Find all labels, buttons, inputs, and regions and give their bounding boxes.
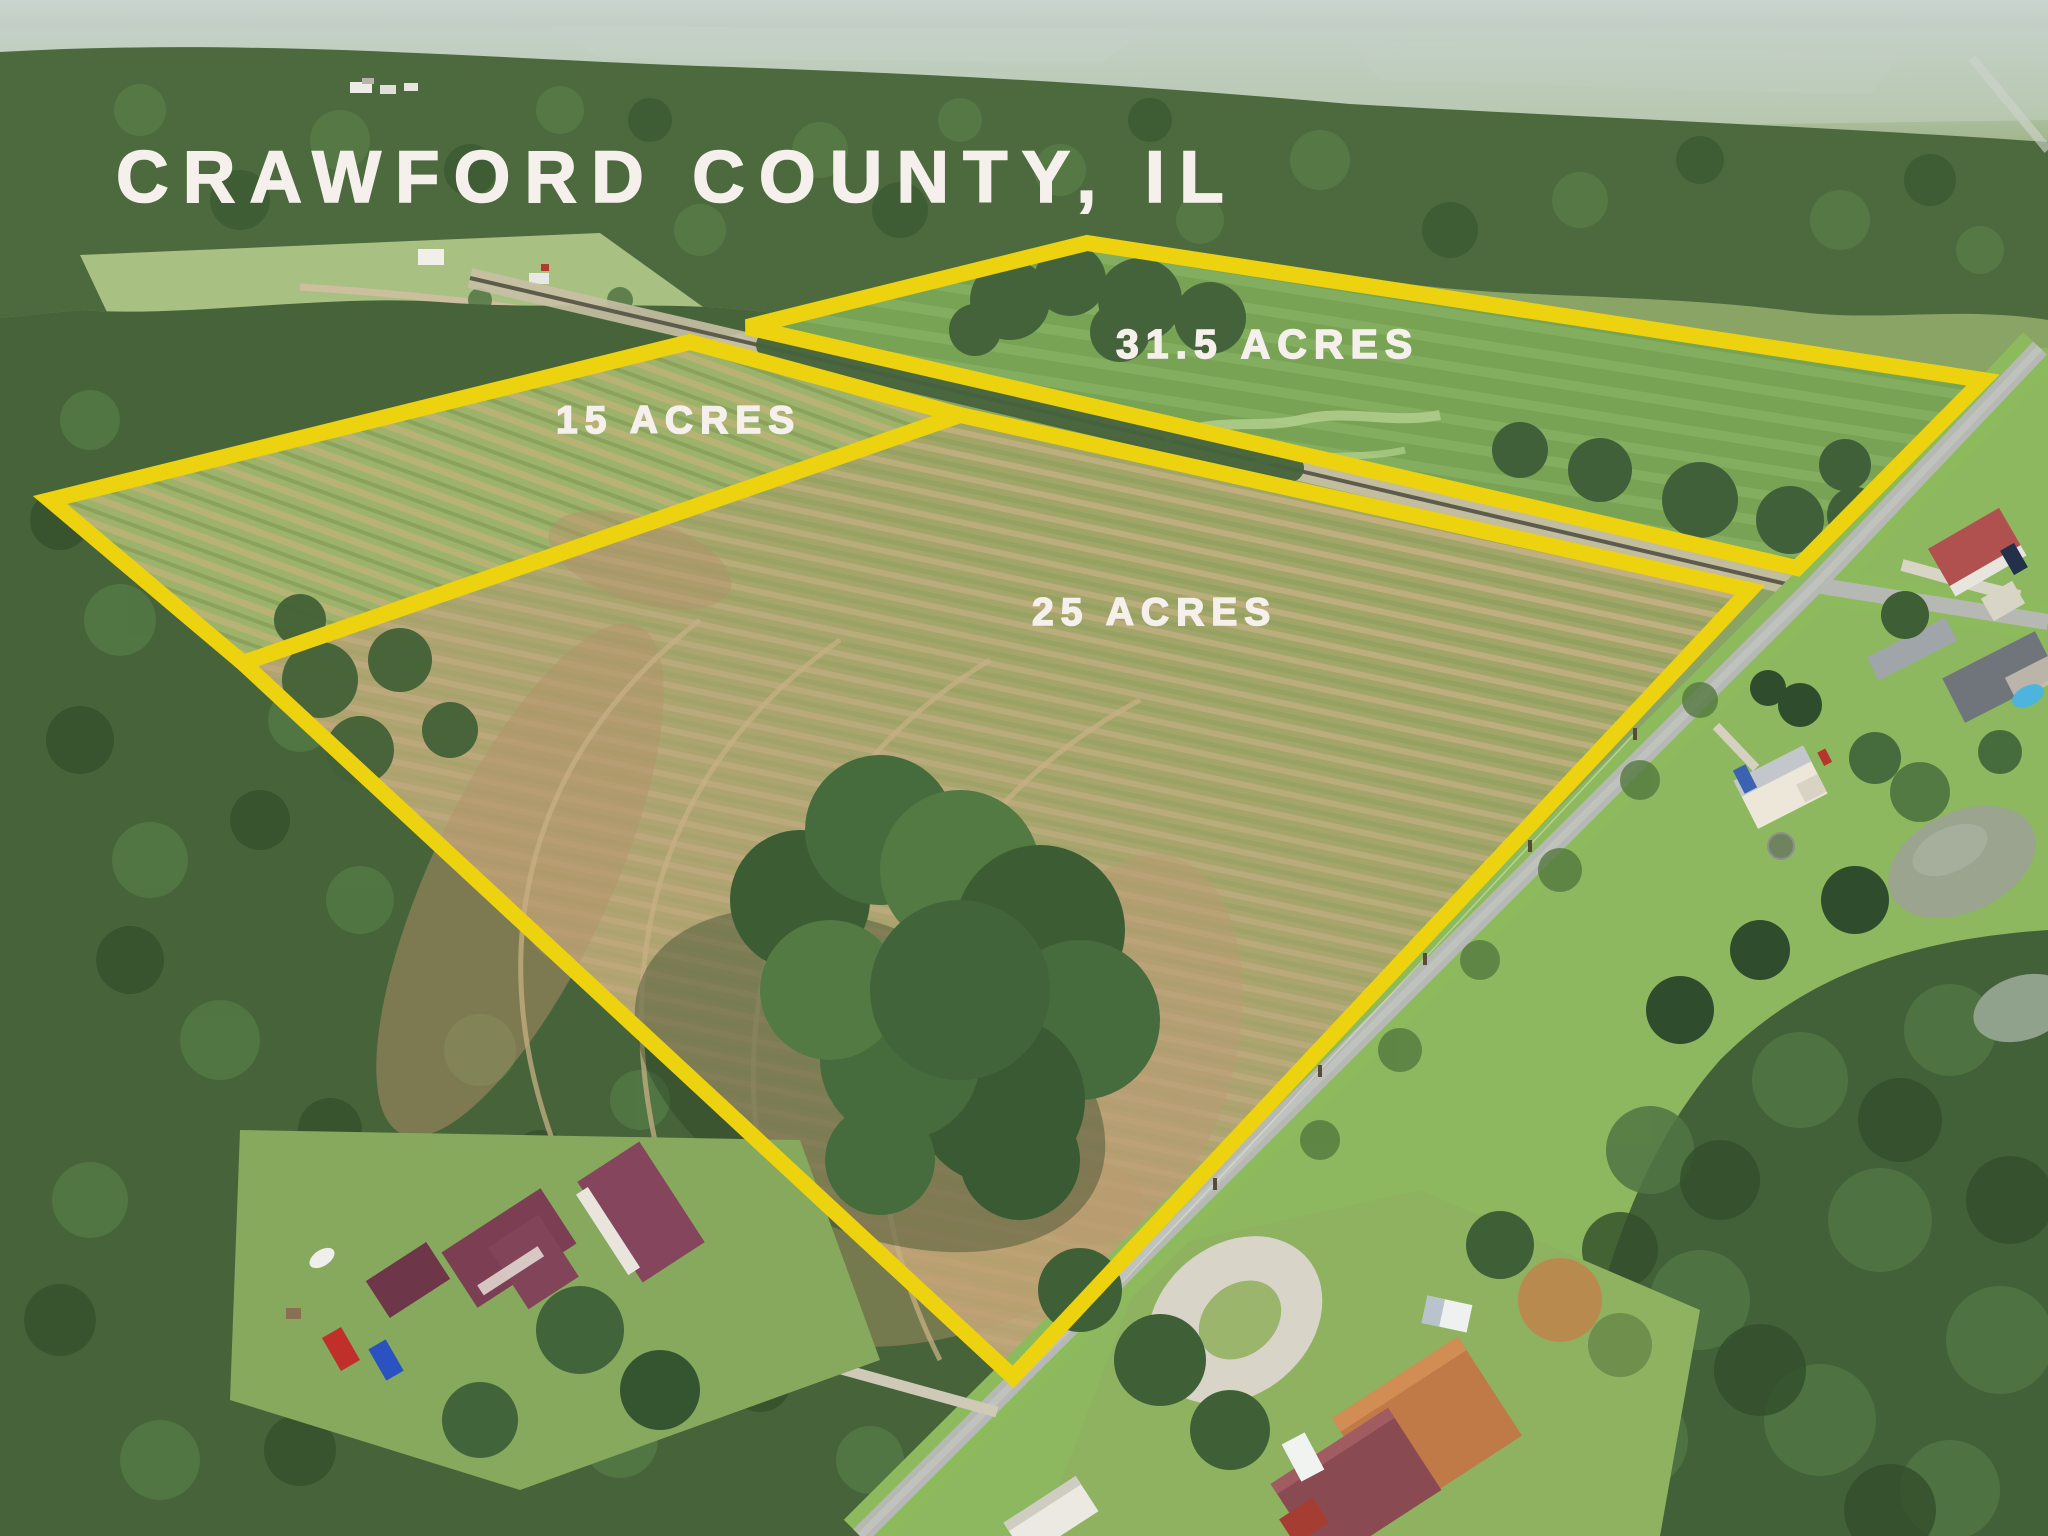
parcel-31-5-label: 31.5 ACRES: [1116, 321, 1419, 368]
aerial-photo: [0, 0, 2048, 1536]
parcel-15-label: 15 ACRES: [556, 399, 801, 443]
page-title: CRAWFORD COUNTY, IL: [116, 136, 1238, 219]
parcel-25-label: 25 ACRES: [1032, 591, 1277, 635]
